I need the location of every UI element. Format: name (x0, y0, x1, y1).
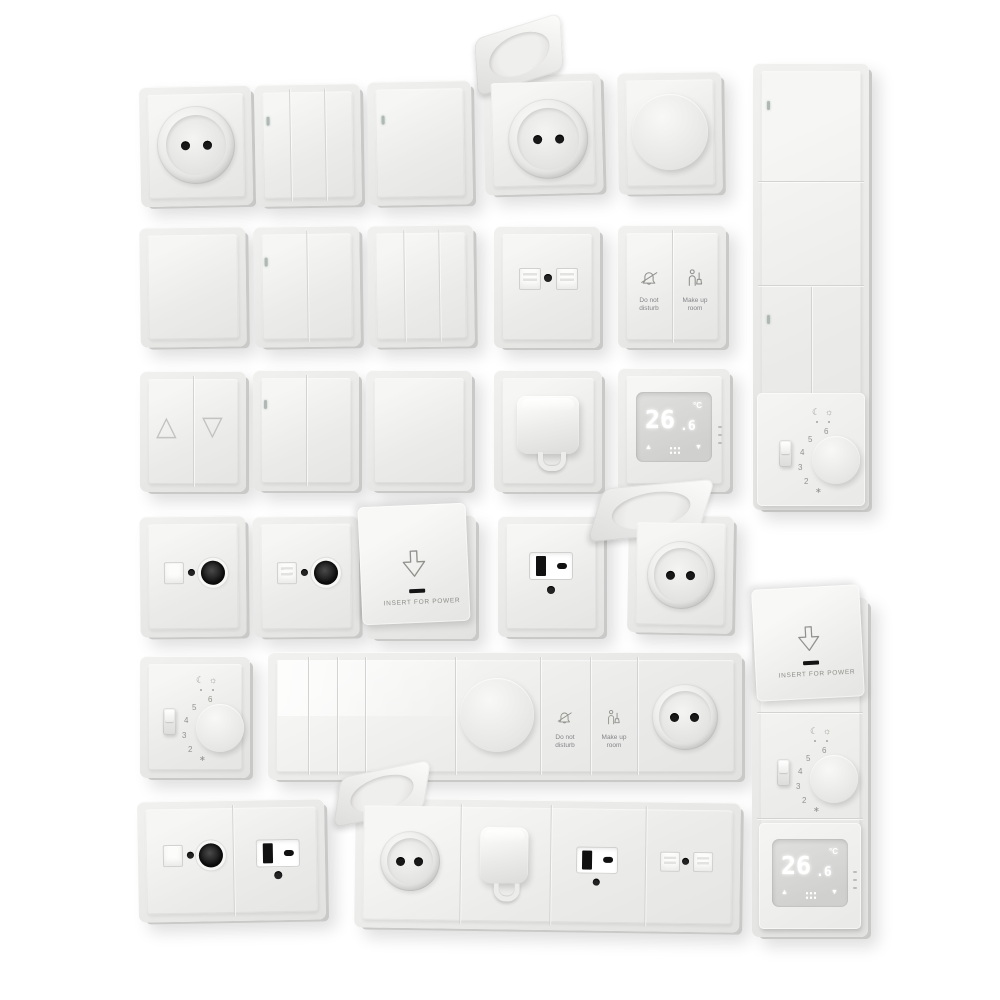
usb-recess (256, 839, 300, 868)
switch-rockers (375, 232, 466, 339)
side-tick (853, 871, 857, 873)
sun-icon: ☼ (209, 676, 217, 685)
coax-connector (201, 561, 225, 585)
plate-face (502, 234, 592, 340)
hotel-service-switch-plate: Do notdisturb Make uproom (618, 225, 726, 348)
thermostat-module: ☾ ☼ 6 5 4 3 2 ∗ (757, 393, 865, 506)
dimmer-knob (460, 678, 534, 752)
small-hole (301, 569, 308, 576)
square-jack (164, 562, 184, 584)
dial-thermostat: ☾ ☼ 6 5 4 3 2 ∗ (758, 394, 864, 506)
three-gang-switch-plate (367, 224, 475, 347)
schuko-socket-plate (139, 85, 253, 207)
socket-pin-hole (203, 141, 212, 150)
socket-pin-hole (690, 713, 699, 722)
center-hole (544, 274, 552, 282)
temp-up-button: ▲ (781, 889, 788, 896)
usb-recess (576, 846, 618, 874)
one-gang-plain-plate (366, 370, 472, 491)
schuko-lid-socket-plate-large (627, 514, 734, 634)
dial-number: 3 (796, 782, 800, 791)
dial-thermostat: ☾ ☼ 6 5 4 3 2 ∗ (756, 713, 862, 825)
mode-slider (163, 708, 176, 735)
rotary-dimmer-plate (617, 71, 723, 194)
blind-down-icon: ▽ (202, 413, 223, 440)
sun-icon: ☼ (825, 408, 833, 417)
thermostat-dial-knob (812, 436, 860, 484)
dial-number: 4 (800, 448, 804, 457)
hooded-outlet-plate (494, 370, 602, 492)
dial-number: 6 (824, 427, 828, 436)
switch-rocker (147, 234, 238, 339)
socket-pin-hole (414, 857, 423, 866)
socket-pin-hole (670, 713, 679, 722)
dial-number: 4 (798, 767, 802, 776)
frost-icon: ∗ (199, 754, 206, 763)
tv-coax-socket-plate (139, 515, 246, 637)
icon-dot (826, 740, 828, 742)
thermostat-dial-knob (810, 755, 858, 803)
plate-face (260, 524, 351, 630)
one-gang-switch-plate (367, 80, 473, 206)
dial-number: 3 (182, 731, 186, 740)
data-jack (660, 852, 680, 872)
module-divider (455, 657, 456, 775)
icon-dot (816, 421, 818, 423)
three-gang-switch-plate (254, 83, 362, 207)
socket-pin-hole (666, 571, 675, 580)
icon-dot (200, 689, 202, 691)
socket-pin-hole (396, 857, 405, 866)
usb-a-port (536, 556, 546, 576)
menu-grid-icon (669, 446, 681, 455)
module-divider (590, 657, 591, 775)
data-jack (556, 268, 578, 290)
module-divider (637, 657, 638, 775)
led-indicator (267, 117, 270, 126)
square-jack (163, 845, 183, 867)
cable-outlet-hood (480, 827, 529, 884)
screw-hole (593, 879, 600, 886)
horizontal-combo-panel-2 (354, 797, 741, 932)
data-jack (519, 268, 541, 290)
one-gang-plain-plate (139, 226, 247, 347)
frost-icon: ∗ (815, 486, 822, 495)
data-jack (693, 852, 713, 872)
insert-arrow-icon (399, 548, 428, 579)
led-indicator (264, 400, 267, 409)
temperature-value: 26 (781, 853, 811, 878)
small-hole (187, 852, 194, 859)
mode-slider (779, 440, 792, 467)
make-up-room-person-icon (604, 708, 623, 727)
usb-c-port (557, 563, 567, 569)
side-tick (853, 879, 857, 881)
dial-number: 2 (188, 745, 192, 754)
plate-face (147, 524, 238, 630)
make-up-room-label: Make uproom (665, 297, 725, 313)
screw-hole (547, 586, 555, 594)
two-gang-switch-plate (253, 225, 361, 347)
usb-a-port (263, 843, 273, 863)
center-hole (682, 858, 689, 865)
module-divider (758, 181, 865, 182)
led-indicator (767, 101, 770, 110)
insert-for-power-label: INSERT FOR POWER (384, 597, 461, 607)
module-divider (365, 657, 366, 775)
schuko-lid-socket-plate (482, 72, 603, 195)
side-tick (718, 442, 722, 444)
usb-c-port (284, 850, 294, 856)
side-tick (718, 434, 722, 436)
temperature-unit: °C (829, 847, 838, 856)
led-indicator (382, 116, 385, 125)
module-divider (337, 657, 338, 775)
dial-number: 5 (806, 754, 810, 763)
temp-up-button: ▲ (645, 444, 652, 451)
mode-slider (777, 759, 790, 786)
socket-pin-hole (533, 135, 542, 144)
coax-connector (314, 561, 338, 585)
usb-recess (529, 552, 573, 580)
schuko-socket (652, 684, 718, 750)
key-card-holder-plate: INSERT FOR POWER (366, 515, 476, 639)
small-hole (188, 569, 195, 576)
key-card-flap: INSERT FOR POWER (357, 503, 470, 626)
moon-icon: ☾ (196, 676, 204, 685)
card-led-slot (409, 589, 425, 594)
usb-outlet-plate (498, 516, 604, 637)
do-not-disturb-bell-icon (555, 708, 574, 727)
icon-dot (814, 740, 816, 742)
render-canvas: ☾ ☼ 6 5 4 3 2 ∗ (0, 0, 1000, 1000)
moon-icon: ☾ (812, 408, 820, 417)
blind-up-icon: △ (156, 413, 177, 440)
thermostat-screen: 26 .6 °C ▲ ▼ (772, 839, 848, 907)
moon-icon: ☾ (810, 727, 818, 736)
combo-tv-usb-plate (137, 798, 326, 922)
rocker-divider (672, 230, 673, 343)
side-tick (718, 426, 722, 428)
module-divider (308, 657, 309, 775)
blind-switch-plate: △ ▽ (140, 371, 246, 492)
rocker-divider (306, 375, 307, 486)
tv-coax-socket-plate (252, 515, 359, 637)
menu-grid-icon (805, 891, 817, 900)
insert-arrow-icon (795, 624, 822, 653)
frost-icon: ∗ (813, 805, 820, 814)
dial-number: 6 (208, 695, 212, 704)
dial-thermostat-plate: ☾ ☼ 6 5 4 3 2 ∗ (140, 656, 250, 778)
vertical-combo-panel-2: INSERT FOR POWER ☾ ☼ 6 5 4 3 2 ∗ 26 .6 °… (752, 597, 868, 937)
usb-a-port (582, 850, 592, 869)
switch-rockers (262, 91, 354, 199)
digital-thermostat-plate: 26 .6 °C ▲ ▼ (618, 368, 730, 492)
make-up-room-person-icon (684, 267, 706, 289)
socket-pin-hole (181, 141, 190, 150)
key-card-flap: INSERT FOR POWER (751, 584, 865, 701)
dial-thermostat: ☾ ☼ 6 5 4 3 2 ∗ (142, 662, 248, 774)
rocker-divider (811, 287, 812, 393)
module-divider (540, 657, 541, 775)
temperature-unit: °C (693, 401, 702, 410)
usb-c-port (603, 857, 613, 863)
dial-number: 3 (798, 463, 802, 472)
make-up-room-label: Make uproom (584, 734, 644, 750)
led-indicator (767, 315, 770, 324)
do-not-disturb-bell-icon (638, 267, 660, 289)
module-divider (758, 285, 865, 286)
dial-number: 5 (192, 703, 196, 712)
sun-icon: ☼ (823, 727, 831, 736)
card-led-slot (803, 660, 819, 665)
switch-rocker (374, 378, 464, 483)
horizontal-combo-panel: Do notdisturb Make uproom (268, 652, 742, 780)
led-indicator (265, 258, 268, 267)
temperature-decimal: .6 (680, 419, 696, 434)
thermostat-screen: 26 .6 °C ▲ ▼ (636, 392, 712, 462)
dial-number: 5 (808, 435, 812, 444)
two-gang-switch-plate (253, 370, 359, 491)
temp-down-button: ▼ (695, 444, 702, 451)
square-jack (277, 562, 297, 584)
side-tick (853, 887, 857, 889)
icon-dot (212, 689, 214, 691)
thermostat-dial-knob (196, 704, 244, 752)
icon-dot (828, 421, 830, 423)
dual-data-socket-plate (494, 226, 600, 348)
dial-number: 2 (802, 796, 806, 805)
dial-number: 2 (804, 477, 808, 486)
rocker-divider (193, 376, 194, 487)
cable-outlet-hood (517, 396, 579, 454)
temperature-decimal: .6 (816, 865, 832, 880)
socket-pin-hole (686, 571, 695, 580)
insert-for-power-label: INSERT FOR POWER (779, 669, 856, 680)
dial-number: 4 (184, 716, 188, 725)
socket-pin-hole (555, 134, 564, 143)
vertical-combo-panel: ☾ ☼ 6 5 4 3 2 ∗ (753, 63, 869, 510)
switch-rocker (375, 88, 465, 198)
digital-thermostat-module: 26 .6 °C ▲ ▼ (759, 823, 861, 929)
temp-down-button: ▼ (831, 889, 838, 896)
dial-number: 6 (822, 746, 826, 755)
temperature-value: 26 (645, 407, 675, 432)
